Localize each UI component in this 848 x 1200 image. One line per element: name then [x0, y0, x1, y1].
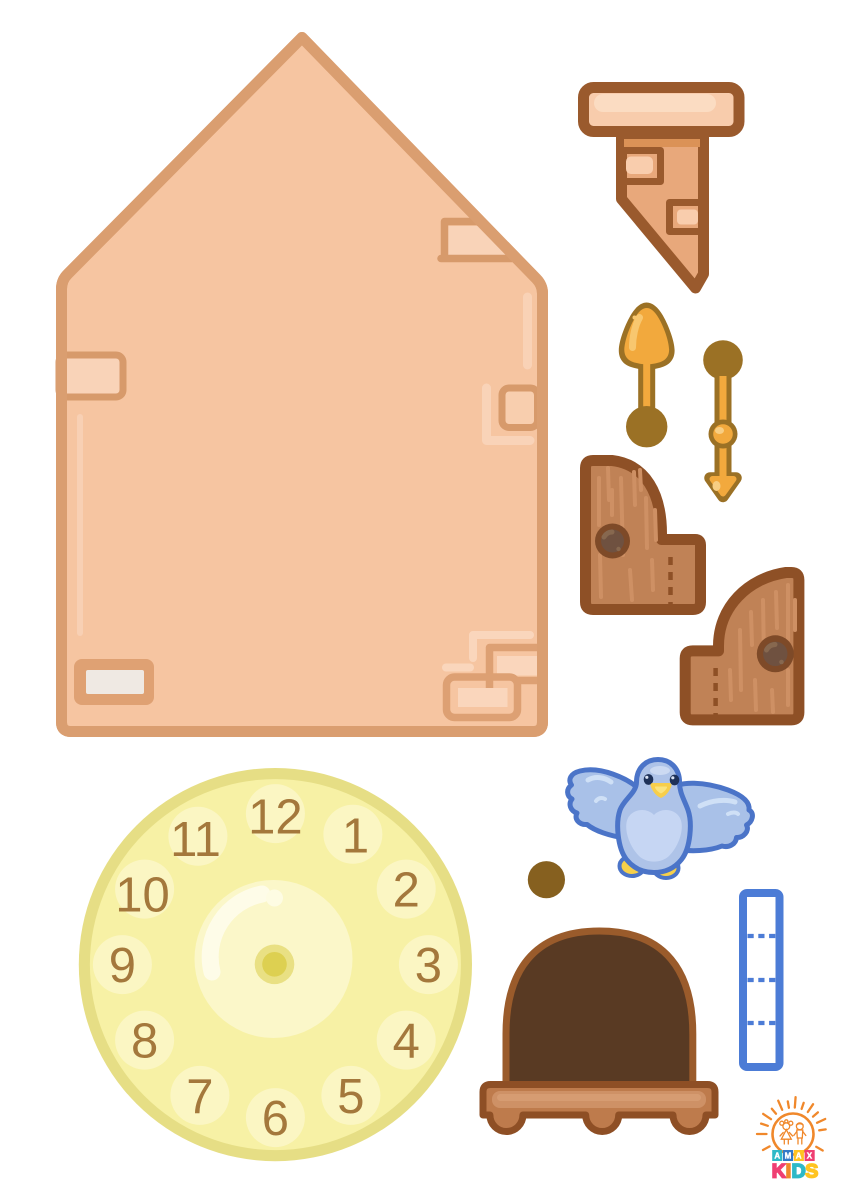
svg-text:K: K [772, 1160, 786, 1182]
svg-text:I: I [786, 1160, 791, 1182]
svg-text:D: D [792, 1160, 806, 1182]
svg-text:11: 11 [170, 813, 221, 867]
svg-text:3: 3 [415, 939, 442, 993]
svg-text:A: A [774, 1152, 780, 1161]
svg-text:A: A [796, 1152, 802, 1161]
svg-text:12: 12 [248, 790, 303, 844]
svg-text:4: 4 [393, 1015, 420, 1069]
svg-text:9: 9 [109, 939, 136, 993]
svg-text:10: 10 [115, 869, 170, 923]
svg-text:8: 8 [131, 1015, 158, 1069]
svg-text:5: 5 [337, 1070, 364, 1124]
svg-text:M: M [785, 1152, 792, 1161]
svg-text:X: X [807, 1152, 813, 1161]
svg-text:6: 6 [262, 1092, 289, 1146]
svg-text:2: 2 [393, 864, 420, 918]
svg-text:S: S [805, 1160, 818, 1182]
svg-text:7: 7 [186, 1070, 213, 1124]
svg-text:1: 1 [342, 809, 369, 863]
